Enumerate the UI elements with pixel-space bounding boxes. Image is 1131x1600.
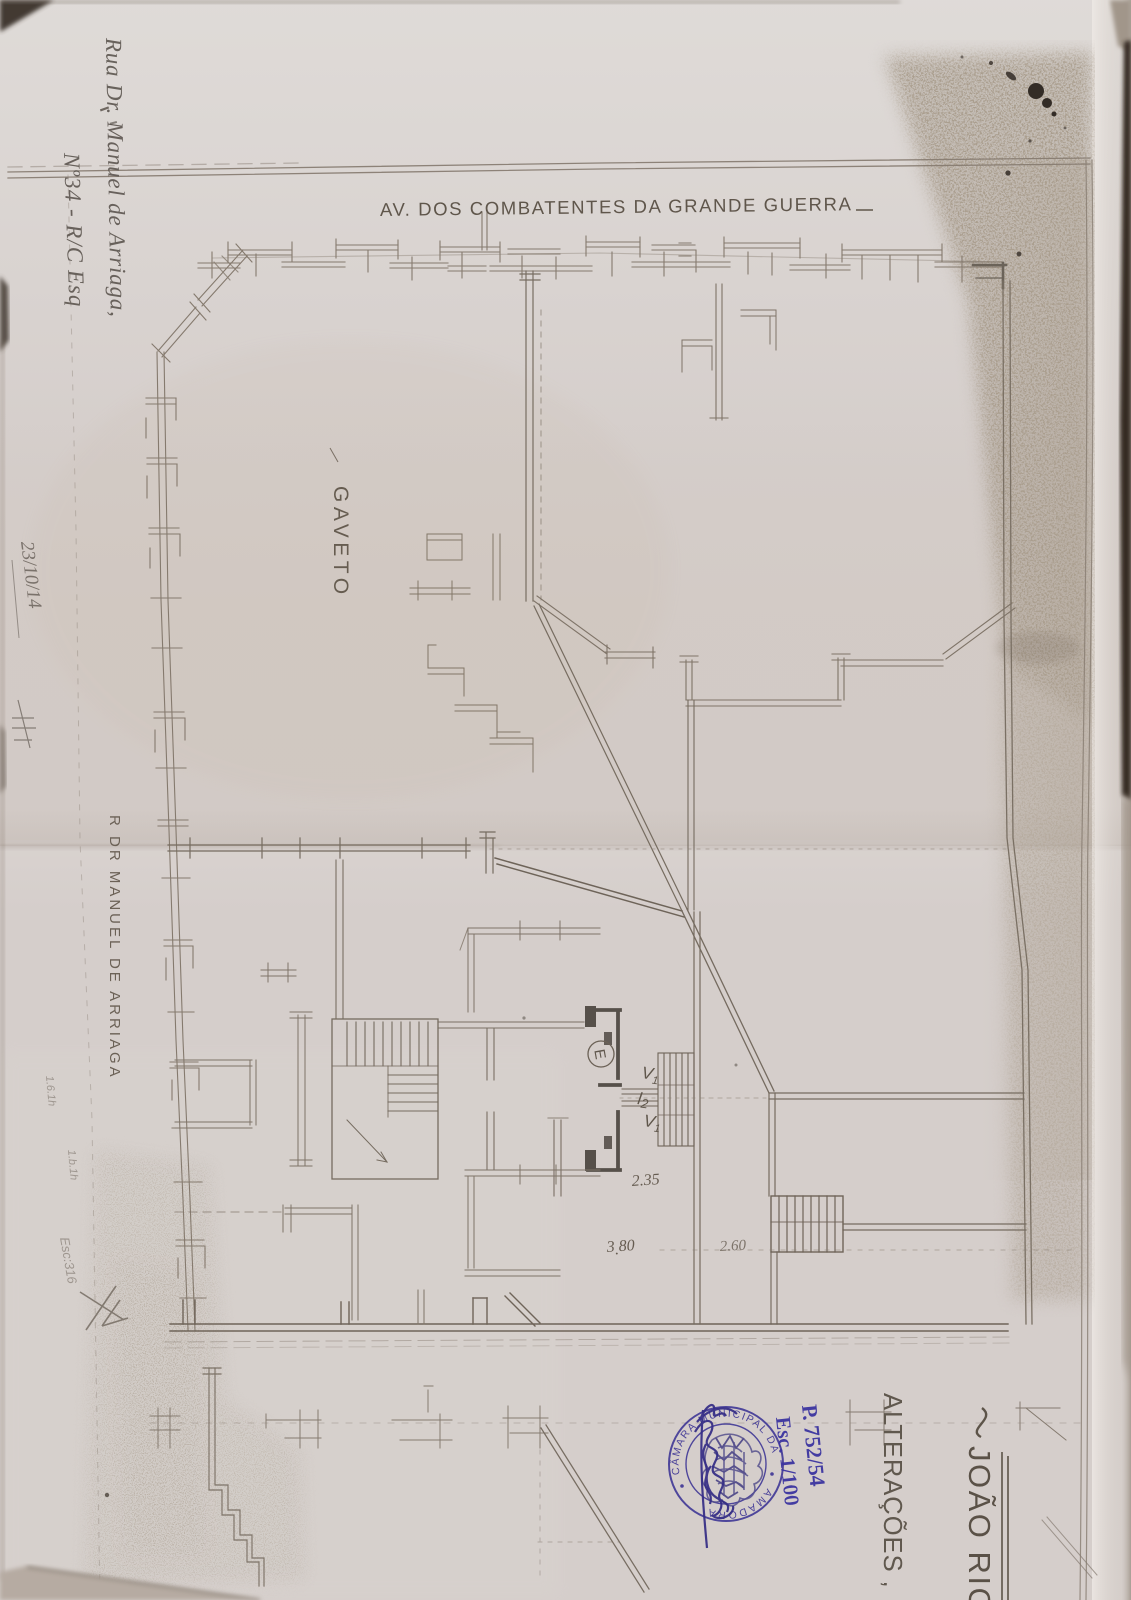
svg-text:ALTERAÇÕES ,: ALTERAÇÕES , (878, 1393, 907, 1589)
svg-text:2.35: 2.35 (631, 1171, 660, 1190)
svg-text:R DR MANUEL DE ARRIAGA: R DR MANUEL DE ARRIAGA (106, 815, 123, 1080)
svg-text:2.60: 2.60 (719, 1238, 747, 1255)
svg-text:JOÃO RIC: JOÃO RIC (962, 1446, 997, 1600)
svg-text:Rua Dr. Manuel de Arriaga,: Rua Dr. Manuel de Arriaga, (101, 37, 131, 318)
svg-text:GAVETO: GAVETO (329, 486, 352, 599)
